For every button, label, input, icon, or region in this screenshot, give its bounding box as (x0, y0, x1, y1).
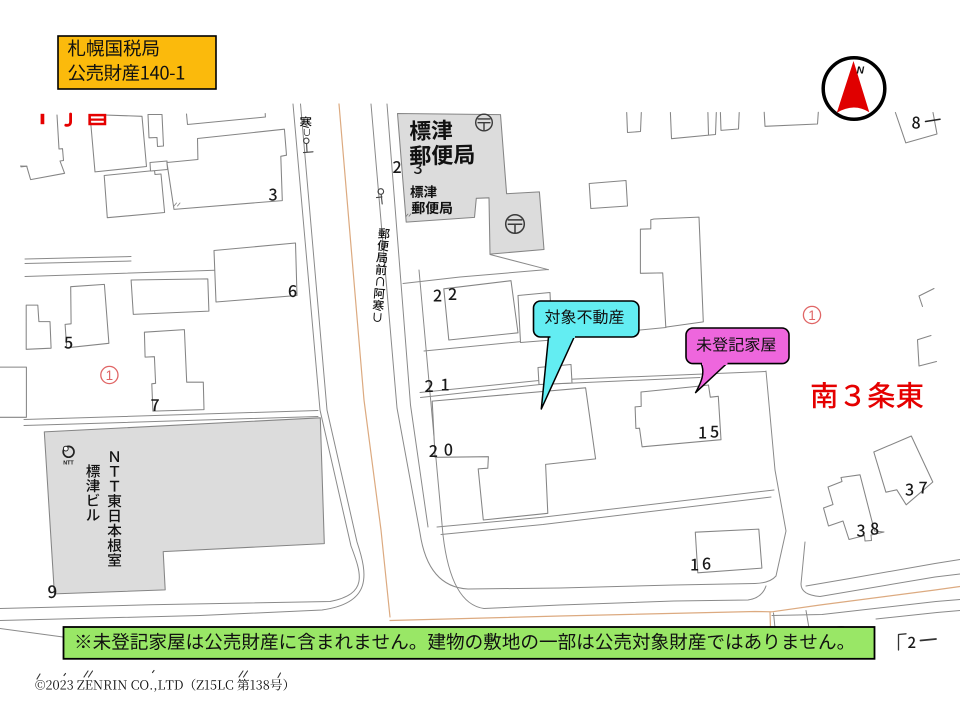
svg-text:NTT: NTT (63, 461, 74, 467)
svg-text:N: N (857, 65, 865, 77)
svg-text:1: 1 (106, 368, 114, 383)
svg-text:1: 1 (808, 308, 816, 323)
